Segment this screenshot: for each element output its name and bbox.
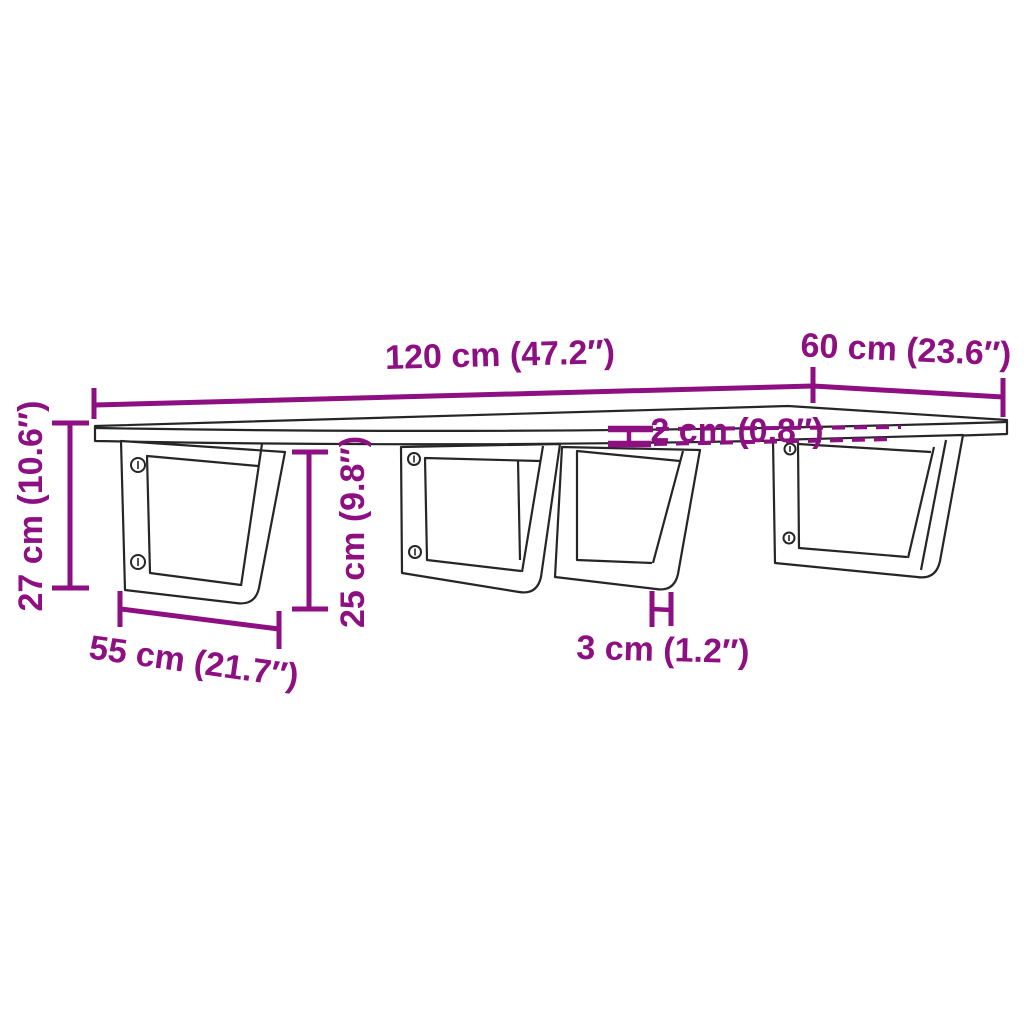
shelf-dimension-diagram: 120 cm (47.2″) 60 cm (23.6″) 2 cm (0.8″)… <box>0 0 1024 1024</box>
bracket-3 <box>555 447 700 589</box>
bar-width-connector <box>652 609 671 610</box>
total-height-label: 27 cm (10.6″) <box>12 401 50 612</box>
shelf-length-label: 120 cm (47.2″) <box>385 333 616 377</box>
bracket-1 <box>121 441 285 603</box>
shelf-thickness-label: 2 cm (0.8″) <box>650 412 823 450</box>
bracket-height-label: 25 cm (9.8″) <box>334 436 372 628</box>
bracket-2 <box>401 444 560 592</box>
bracket-4 <box>773 435 963 577</box>
bracket-4-outer <box>773 435 963 577</box>
bracket-bar-width-label: 3 cm (1.2″) <box>576 629 750 672</box>
